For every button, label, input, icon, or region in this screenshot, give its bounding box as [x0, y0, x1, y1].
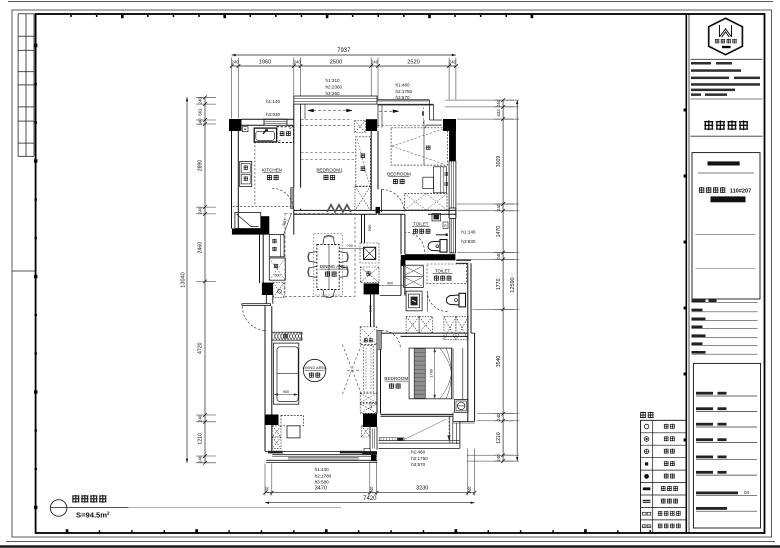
- svg-text:BEDROOM: BEDROOM: [384, 376, 408, 381]
- svg-text:240: 240: [496, 203, 501, 211]
- svg-text:7420: 7420: [363, 496, 377, 502]
- svg-text:240: 240: [232, 60, 240, 65]
- svg-text:2520: 2520: [407, 60, 419, 66]
- svg-text:1210: 1210: [369, 401, 373, 409]
- svg-text:TOILET: TOILET: [435, 268, 451, 273]
- svg-text:BEDROOM1: BEDROOM1: [316, 168, 343, 173]
- svg-text:140: 140: [198, 118, 203, 126]
- svg-text:700: 700: [347, 244, 353, 248]
- svg-text:240: 240: [198, 455, 203, 463]
- svg-text:240: 240: [496, 99, 501, 107]
- svg-text:S=94.5m²: S=94.5m²: [76, 511, 110, 520]
- svg-text:h1:440: h1:440: [315, 467, 329, 472]
- svg-text:BEDROOM: BEDROOM: [387, 172, 411, 177]
- svg-text:600: 600: [275, 274, 281, 278]
- svg-text:240: 240: [467, 486, 472, 494]
- svg-text:1210: 1210: [496, 432, 502, 444]
- svg-text:R: R: [444, 224, 447, 228]
- svg-text:1470: 1470: [496, 226, 502, 238]
- svg-text:433: 433: [496, 109, 501, 117]
- svg-text:110#207: 110#207: [730, 189, 751, 195]
- svg-text:h3:580: h3:580: [315, 480, 329, 485]
- svg-text:13040: 13040: [181, 272, 187, 288]
- svg-text:2890: 2890: [198, 160, 204, 172]
- svg-text:h3:570: h3:570: [396, 95, 410, 100]
- svg-text:900: 900: [367, 224, 372, 231]
- svg-text:1960: 1960: [259, 60, 271, 66]
- svg-text:240: 240: [198, 96, 203, 104]
- svg-text:900: 900: [387, 281, 393, 285]
- svg-text:h1:140: h1:140: [461, 229, 475, 234]
- svg-text:KITCHEN: KITCHEN: [262, 168, 282, 173]
- svg-text:h3:930: h3:930: [266, 112, 280, 117]
- svg-text:04: 04: [744, 490, 750, 495]
- svg-text:4720: 4720: [198, 342, 204, 354]
- svg-text:h3:930: h3:930: [461, 239, 475, 244]
- svg-text:h3:570: h3:570: [411, 462, 425, 467]
- svg-text:LIVING AREA: LIVING AREA: [302, 365, 327, 370]
- svg-text:7937: 7937: [337, 48, 351, 54]
- svg-text:900: 900: [367, 304, 372, 311]
- svg-text:240: 240: [198, 414, 203, 422]
- svg-text:240: 240: [369, 486, 374, 494]
- svg-text:h2:1780: h2:1780: [315, 473, 332, 478]
- svg-text:2460: 2460: [198, 242, 204, 254]
- svg-text:240: 240: [449, 60, 457, 65]
- svg-text:2500: 2500: [330, 60, 342, 66]
- svg-text:3230: 3230: [416, 486, 428, 492]
- svg-text:TOILET: TOILET: [413, 222, 429, 227]
- svg-text:240: 240: [294, 60, 302, 65]
- svg-text:3540: 3540: [496, 356, 502, 368]
- svg-text:h1:310: h1:310: [326, 78, 340, 83]
- svg-text:240: 240: [371, 60, 379, 65]
- svg-text:240: 240: [264, 486, 269, 494]
- svg-text:12590: 12590: [510, 277, 516, 293]
- svg-text:561: 561: [198, 108, 203, 116]
- svg-text:3470: 3470: [315, 486, 327, 492]
- svg-text:h3:250: h3:250: [326, 91, 340, 96]
- svg-text:DINING AREA: DINING AREA: [320, 264, 348, 269]
- svg-text:h2:2360: h2:2360: [326, 85, 343, 90]
- svg-text:1780: 1780: [429, 368, 434, 377]
- svg-text:240: 240: [496, 413, 501, 421]
- svg-text:900: 900: [283, 390, 289, 394]
- svg-text:h1:460: h1:460: [396, 82, 410, 87]
- svg-text:h1:460: h1:460: [411, 450, 425, 455]
- svg-text:h1:140: h1:140: [266, 99, 280, 104]
- svg-text:h2:1750: h2:1750: [396, 89, 413, 94]
- svg-text:1210: 1210: [198, 433, 204, 445]
- svg-text:240: 240: [496, 252, 501, 260]
- svg-text:h2:1750: h2:1750: [411, 456, 428, 461]
- svg-text:1770: 1770: [496, 278, 502, 290]
- svg-text:3009: 3009: [496, 156, 502, 168]
- svg-text:240: 240: [198, 206, 203, 214]
